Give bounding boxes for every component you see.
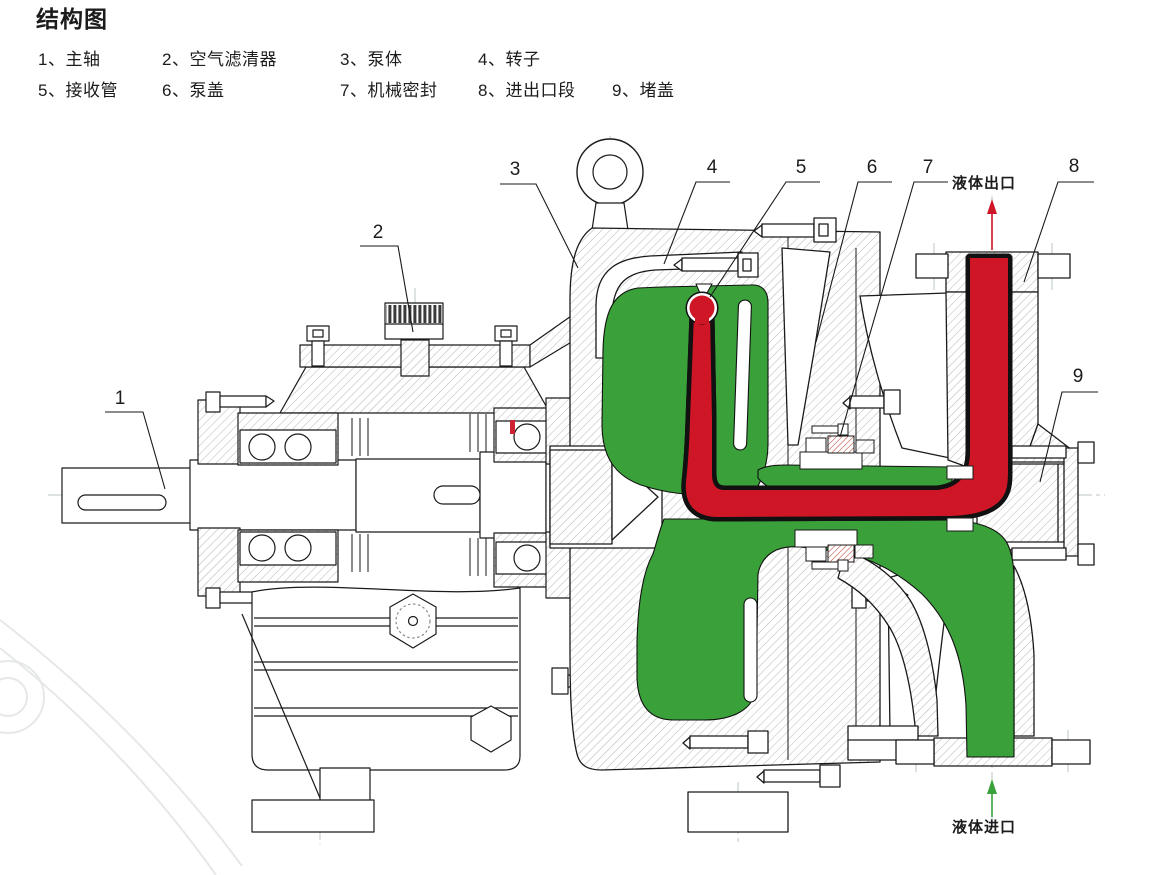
- legend-item-2: 2、空气滤清器: [162, 51, 277, 68]
- page-title: 结构图: [36, 8, 108, 31]
- callout-6: 6: [867, 158, 878, 177]
- structure-diagram-page: 结构图 1、主轴 2、空气滤清器 3、泵体 4、转子 5、接收管 6、泵盖 7、…: [0, 0, 1158, 875]
- inlet-label: 液体进口: [952, 820, 1016, 835]
- callout-2: 2: [373, 223, 384, 242]
- outlet-arrow: [987, 199, 997, 250]
- legend-item-5: 5、接收管: [38, 82, 118, 99]
- callout-9: 9: [1073, 367, 1084, 386]
- callout-1: 1: [115, 389, 126, 408]
- outlet-label: 液体出口: [952, 176, 1016, 191]
- callout-5: 5: [796, 158, 807, 177]
- watermark-logo: [0, 620, 242, 875]
- oil-sump: [252, 587, 520, 770]
- callout-8: 8: [1069, 157, 1080, 176]
- legend-item-7: 7、机械密封: [340, 82, 437, 99]
- inlet-arrow: [987, 779, 997, 817]
- callout-4: 4: [707, 158, 718, 177]
- legend-item-3: 3、泵体: [340, 51, 402, 68]
- lifting-eye-bolt: [577, 139, 643, 230]
- legend-item-1: 1、主轴: [38, 51, 100, 68]
- casing-foot: [688, 792, 788, 832]
- legend-item-4: 4、转子: [478, 51, 540, 68]
- legend-item-8: 8、进出口段: [478, 82, 575, 99]
- legend-item-9: 9、堵盖: [612, 82, 674, 99]
- callout-7: 7: [923, 158, 934, 177]
- callout-3: 3: [510, 160, 521, 179]
- pump-cross-section-drawing: [0, 0, 1158, 875]
- oil-slinger-ring: [434, 486, 480, 504]
- legend-item-6: 6、泵盖: [162, 82, 224, 99]
